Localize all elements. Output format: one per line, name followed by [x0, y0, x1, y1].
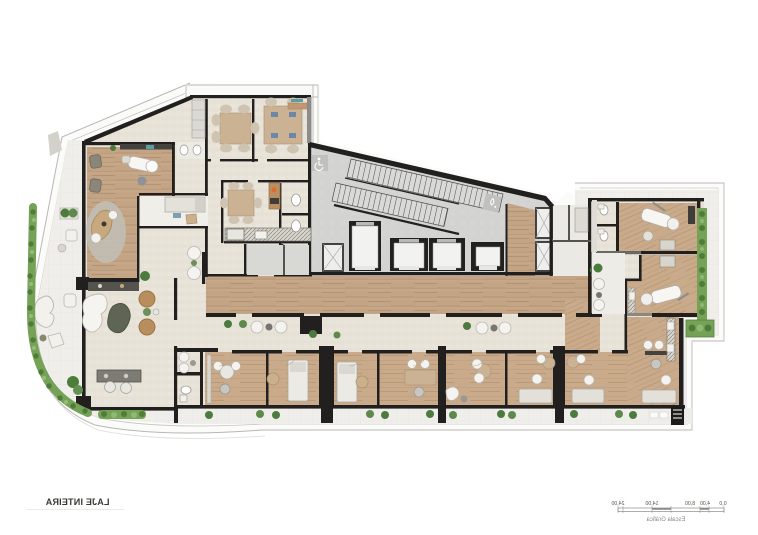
svg-text:14,00: 14,00	[645, 501, 658, 507]
svg-text:0,0: 0,0	[719, 501, 726, 507]
svg-text:8,00: 8,00	[685, 501, 695, 507]
svg-text:24,00: 24,00	[611, 501, 624, 507]
svg-text:4,00: 4,00	[700, 501, 710, 507]
svg-text:LAJE INTEIRA: LAJE INTEIRA	[45, 497, 109, 507]
svg-text:Escala Gráfica: Escala Gráfica	[646, 517, 686, 523]
